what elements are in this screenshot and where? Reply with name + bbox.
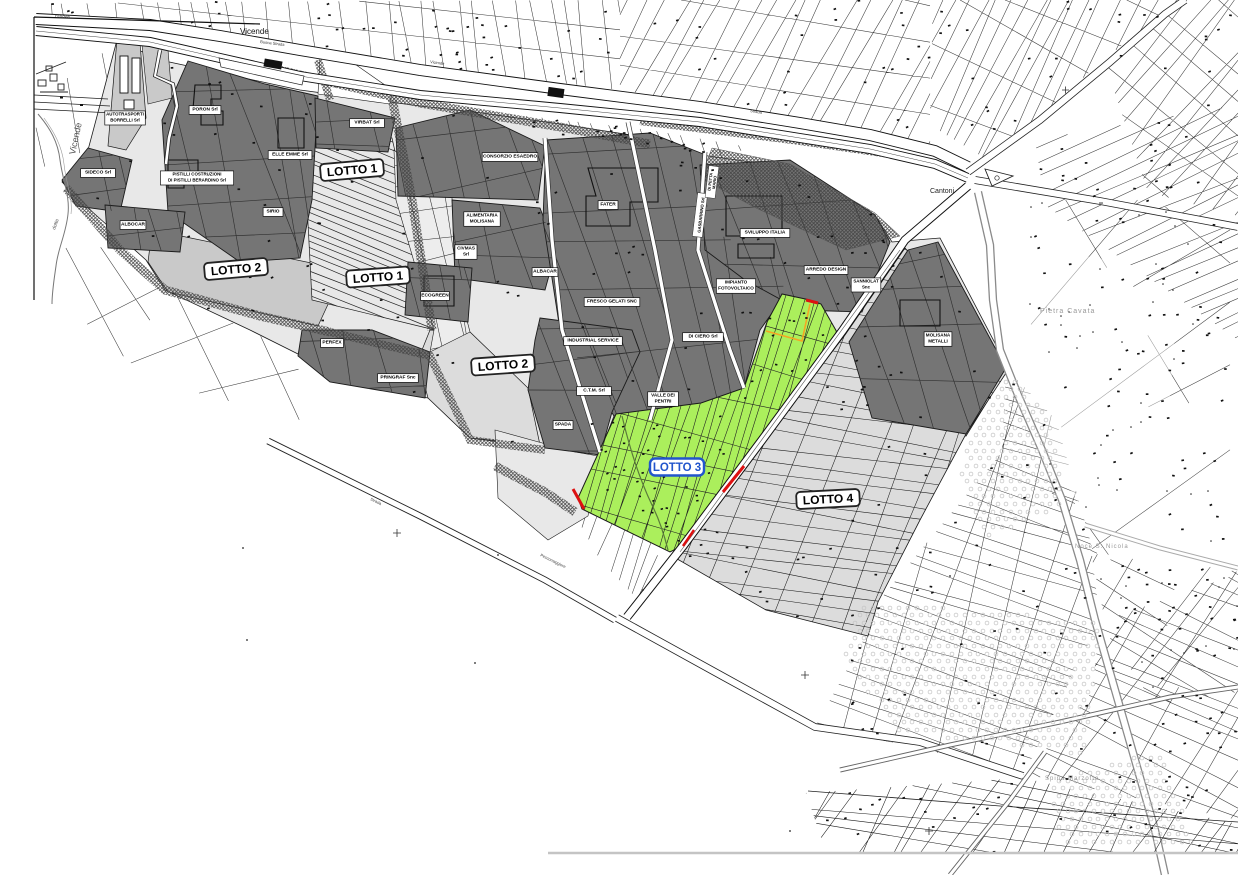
svg-text:SIRIO: SIRIO — [266, 209, 279, 215]
svg-text:FRESCO GELATI SNC: FRESCO GELATI SNC — [587, 299, 638, 305]
svg-text:ALBACAR: ALBACAR — [533, 269, 557, 275]
svg-text:AUTOTRASPORTI: AUTOTRASPORTI — [106, 112, 144, 117]
svg-text:PISTILLI COSTRUZIONI: PISTILLI COSTRUZIONI — [172, 172, 221, 177]
svg-text:SANNIOLAT: SANNIOLAT — [853, 279, 879, 284]
svg-text:Cantoni: Cantoni — [930, 188, 955, 195]
svg-text:SVILUPPO ITALIA: SVILUPPO ITALIA — [745, 230, 786, 236]
svg-text:FOTOVOLTAICO: FOTOVOLTAICO — [718, 286, 754, 291]
svg-text:PORON Srl: PORON Srl — [192, 107, 217, 113]
svg-text:Pietra Cavata: Pietra Cavata — [1040, 308, 1095, 315]
svg-text:PERFEX: PERFEX — [322, 340, 342, 346]
svg-text:SIDECO Srl: SIDECO Srl — [85, 170, 111, 176]
svg-text:VALLE DEI: VALLE DEI — [651, 393, 675, 398]
svg-text:MOLISANA: MOLISANA — [926, 333, 951, 338]
svg-text:Noce S. Nicola: Noce S. Nicola — [1075, 544, 1129, 550]
svg-text:ALIMENTARIA: ALIMENTARIA — [466, 213, 498, 218]
svg-text:C.T.M. Srl: C.T.M. Srl — [583, 388, 605, 394]
svg-text:CONSORZIO ESAEDRO: CONSORZIO ESAEDRO — [483, 154, 537, 160]
svg-text:ARREDO DESIGN: ARREDO DESIGN — [806, 267, 847, 273]
svg-text:DI PISTILLI BERARDINO Srl: DI PISTILLI BERARDINO Srl — [168, 178, 226, 183]
svg-text:CIVMAS: CIVMAS — [457, 246, 475, 251]
svg-text:FATER: FATER — [600, 202, 616, 208]
svg-text:PENTRI: PENTRI — [655, 399, 672, 404]
svg-text:VIRBAT Srl: VIRBAT Srl — [354, 120, 379, 126]
svg-text:MOLISANA: MOLISANA — [470, 219, 495, 224]
svg-text:Spina Marzotto: Spina Marzotto — [1045, 776, 1099, 782]
svg-text:PRINGRAF Snc: PRINGRAF Snc — [380, 375, 416, 381]
svg-text:ECOGREEN: ECOGREEN — [421, 293, 449, 299]
svg-text:ELLE EMME Srl: ELLE EMME Srl — [272, 152, 308, 158]
svg-text:METALLI: METALLI — [928, 339, 948, 344]
svg-text:INDUSTRIAL SERVICE: INDUSTRIAL SERVICE — [567, 338, 619, 344]
svg-text:ALBOCAR: ALBOCAR — [121, 222, 146, 228]
svg-text:Srl: Srl — [463, 252, 469, 257]
svg-text:SPADA: SPADA — [555, 422, 572, 428]
svg-text:DI CIERO Srl: DI CIERO Srl — [688, 334, 717, 340]
svg-text:Snc: Snc — [862, 285, 871, 290]
svg-text:IMPIANTO: IMPIANTO — [725, 280, 748, 285]
svg-text:LOTTO 4: LOTTO 4 — [802, 491, 853, 508]
svg-text:BORRELLI Srl: BORRELLI Srl — [110, 118, 140, 123]
svg-text:LOTTO 3: LOTTO 3 — [653, 462, 701, 474]
svg-text:Vicende: Vicende — [240, 27, 269, 36]
